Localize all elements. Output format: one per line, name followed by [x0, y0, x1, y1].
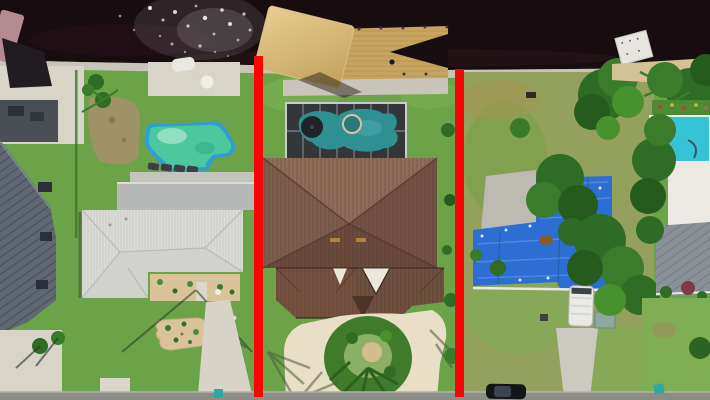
patio-table: [201, 76, 214, 89]
entry-courtyard: [150, 274, 240, 301]
lawn-mower: [526, 92, 536, 98]
left-boundary-line: [254, 56, 263, 397]
trash-bin: [214, 389, 223, 398]
round-bush: [689, 337, 710, 359]
pool-screen-enclosure: [286, 103, 406, 159]
rv-trailer: [568, 286, 593, 327]
street: [0, 392, 710, 400]
aerial-photo: [0, 0, 710, 400]
lanai-flat-roof: [117, 182, 254, 210]
parked-car: [486, 384, 526, 400]
person-on-dock: [389, 59, 394, 64]
fence-line: [75, 70, 78, 238]
spa: [343, 115, 361, 133]
trash-bin: [653, 383, 664, 394]
red-shrub: [681, 281, 695, 295]
aerial-photo-canvas: [0, 0, 710, 400]
right-boundary-line: [455, 69, 464, 397]
bare-dirt-patch: [88, 96, 140, 164]
landscape-island: [324, 316, 412, 400]
roof-hole: [539, 235, 553, 245]
brown-roof-house: [261, 158, 444, 318]
